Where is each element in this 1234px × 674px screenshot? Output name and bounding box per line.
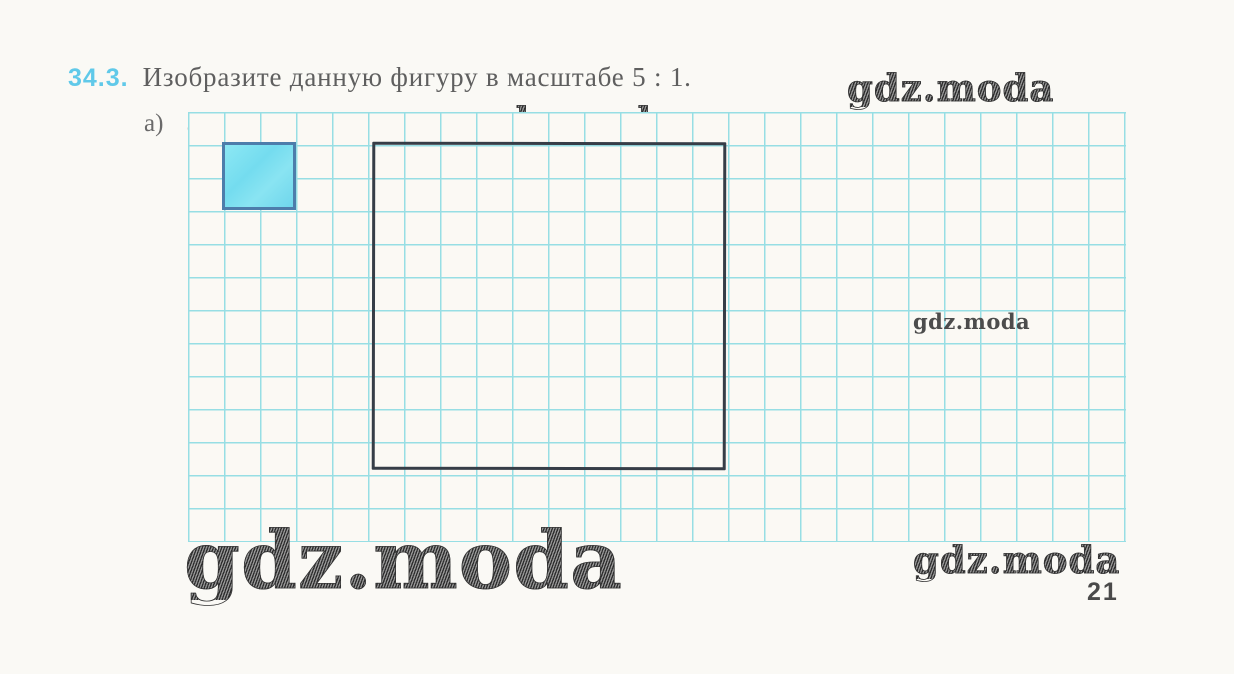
watermark-bottom-right: gdz.moda [913, 542, 1120, 579]
problem-statement: Изобразите данную фигуру в масштабе 5 : … [143, 62, 692, 92]
problem-title: 34.3.Изобразите данную фигуру в масштабе… [68, 62, 692, 93]
watermark-top-right: gdz.moda [847, 70, 1054, 107]
large-square-outline [372, 142, 727, 471]
page-number: 21 [1087, 578, 1119, 607]
watermark-mid-right: gdz.moda [913, 311, 1030, 332]
problem-number: 34.3. [68, 64, 129, 92]
watermark-bottom-big: gdz.moda [184, 520, 623, 600]
part-label: а) [144, 110, 163, 138]
workbook-page: 34.3.Изобразите данную фигуру в масштабе… [0, 0, 1234, 674]
small-square-figure [222, 142, 296, 210]
